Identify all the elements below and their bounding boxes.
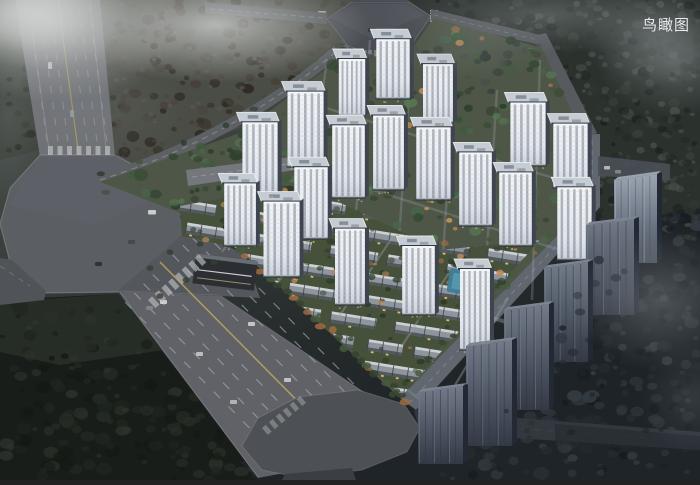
svg-text:鸟瞰图: 鸟瞰图 (642, 17, 690, 34)
